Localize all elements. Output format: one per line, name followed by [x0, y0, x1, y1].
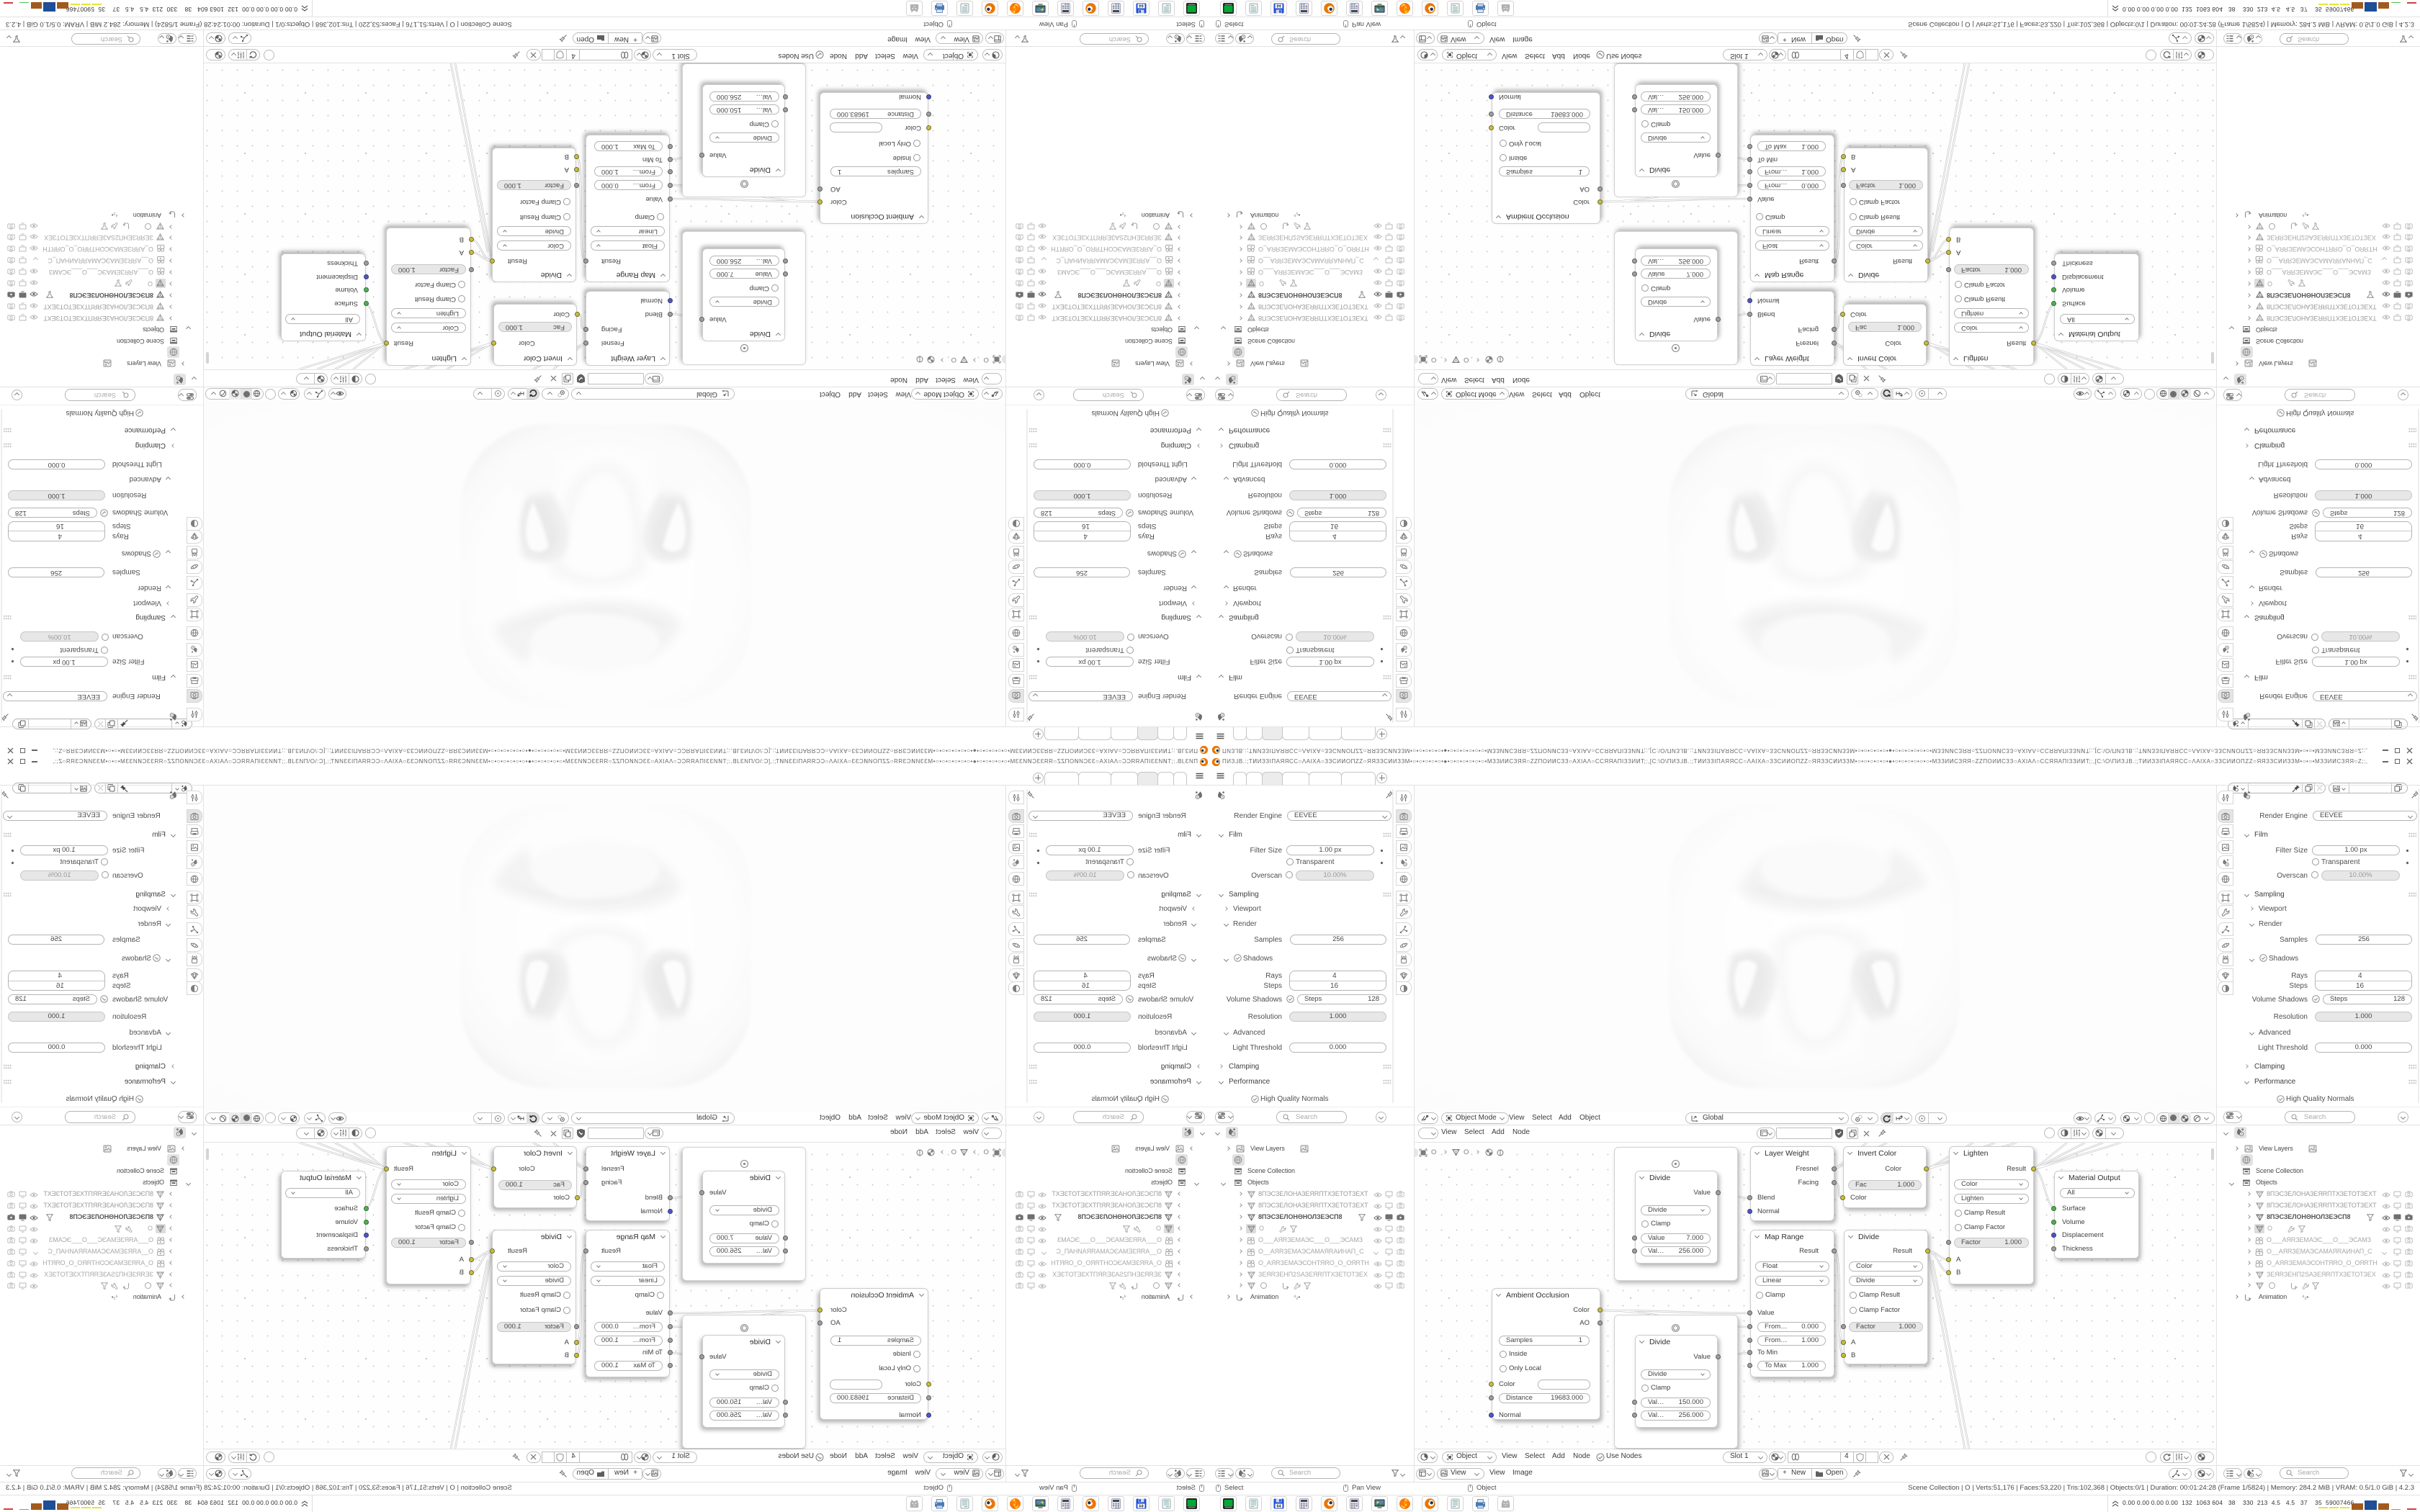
svg-text:64: 64 [1139, 1505, 1144, 1509]
svg-text:64: 64 [1139, 3, 1144, 7]
svg-text:64: 64 [1276, 1505, 1281, 1509]
svg-text:64: 64 [1276, 3, 1281, 7]
